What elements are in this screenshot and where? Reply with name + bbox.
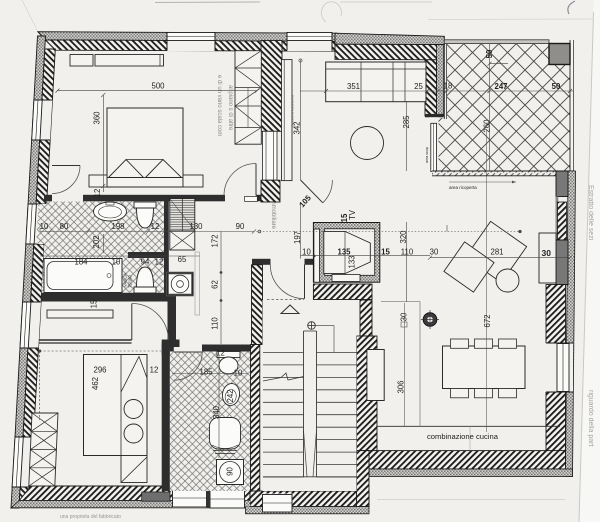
- svg-text:Estratto delle sezi: Estratto delle sezi: [587, 185, 594, 241]
- svg-text:10: 10: [112, 258, 121, 267]
- svg-text:riguardo della part: riguardo della part: [587, 390, 594, 446]
- svg-text:TV: TV: [348, 209, 357, 220]
- svg-text:combinazione cucina: combinazione cucina: [427, 432, 499, 441]
- svg-text:10: 10: [40, 222, 49, 231]
- svg-text:10: 10: [302, 248, 311, 257]
- svg-text:198: 198: [111, 222, 124, 231]
- svg-text:30: 30: [542, 248, 552, 258]
- svg-text:130: 130: [189, 222, 203, 231]
- svg-text:247: 247: [494, 82, 507, 91]
- svg-text:e di un vano scala com: e di un vano scala com: [216, 75, 222, 136]
- svg-text:una proprieta del fabbricato: una proprieta del fabbricato: [60, 514, 121, 520]
- svg-text:al piano s di altre: al piano s di altre: [227, 85, 233, 131]
- svg-text:65: 65: [178, 255, 187, 264]
- svg-text:172: 172: [211, 234, 220, 247]
- svg-text:18: 18: [444, 82, 453, 91]
- svg-text:360: 360: [93, 111, 102, 125]
- svg-text:12: 12: [151, 222, 160, 231]
- svg-text:110: 110: [401, 248, 414, 257]
- svg-text:500: 500: [151, 82, 165, 91]
- svg-text:90: 90: [226, 467, 235, 476]
- svg-text:12: 12: [150, 366, 159, 375]
- svg-text:184: 184: [74, 258, 88, 267]
- svg-text:15: 15: [381, 248, 390, 257]
- svg-text:90: 90: [236, 222, 245, 231]
- svg-text:260: 260: [483, 119, 492, 133]
- svg-text:242: 242: [226, 389, 235, 402]
- svg-text:342: 342: [293, 121, 302, 134]
- svg-text:12: 12: [155, 258, 164, 267]
- svg-text:62: 62: [211, 280, 220, 289]
- svg-text:80: 80: [60, 222, 69, 231]
- svg-text:25: 25: [414, 82, 423, 91]
- svg-text:340: 340: [212, 405, 221, 419]
- svg-text:306: 306: [397, 380, 406, 393]
- svg-text:296: 296: [93, 366, 106, 375]
- svg-text:197: 197: [293, 231, 302, 244]
- svg-text:351: 351: [347, 82, 360, 91]
- svg-text:94: 94: [141, 258, 150, 267]
- svg-text:area scop: area scop: [425, 147, 429, 163]
- svg-text:462: 462: [91, 377, 100, 390]
- svg-text:30: 30: [400, 312, 409, 321]
- svg-text:281: 281: [490, 248, 503, 257]
- svg-text:285: 285: [402, 115, 411, 129]
- svg-text:135: 135: [337, 248, 351, 257]
- svg-text:75/160: 75/160: [128, 275, 133, 288]
- svg-text:12: 12: [216, 349, 225, 358]
- svg-text:15: 15: [90, 299, 99, 308]
- svg-text:185: 185: [199, 368, 213, 377]
- svg-text:area ricoperta: area ricoperta: [449, 185, 477, 190]
- svg-text:50: 50: [552, 82, 561, 91]
- svg-text:30: 30: [430, 248, 439, 257]
- svg-text:10: 10: [234, 369, 243, 378]
- svg-text:133: 133: [348, 255, 357, 268]
- svg-text:202: 202: [92, 235, 101, 248]
- svg-text:320: 320: [399, 230, 408, 244]
- svg-text:672: 672: [483, 314, 492, 327]
- svg-text:110: 110: [211, 317, 220, 330]
- svg-text:12: 12: [93, 189, 102, 198]
- svg-text:50: 50: [485, 49, 494, 58]
